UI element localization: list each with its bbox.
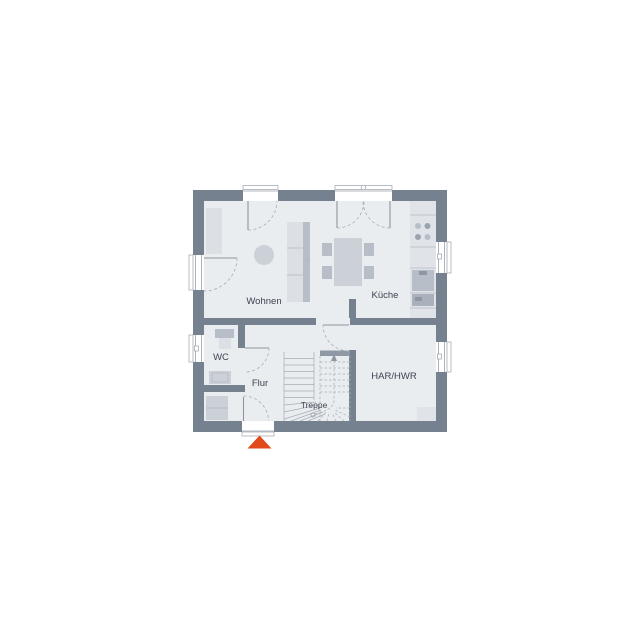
floor-plan-svg: Wohnen Küche WC Flur Treppe HAR/HWR — [0, 0, 636, 636]
kitchen-counter — [410, 201, 436, 318]
entrance-arrow-icon — [248, 436, 272, 449]
terrace-door-opening — [189, 255, 204, 290]
har-equipment — [417, 407, 436, 421]
room-label-treppe: Treppe — [301, 400, 328, 410]
room-label-wc: WC — [213, 352, 229, 363]
har-window — [436, 342, 451, 372]
sideboard — [206, 208, 222, 254]
entrance-opening — [242, 421, 274, 436]
room-label-flur: Flur — [252, 378, 268, 389]
floor-plan-page: Wohnen Küche WC Flur Treppe HAR/HWR — [0, 0, 636, 636]
room-label-kueche: Küche — [372, 290, 399, 301]
wc-window — [189, 335, 204, 362]
shelf-unit — [287, 222, 310, 302]
room-label-wohnen: Wohnen — [246, 296, 281, 307]
room-label-har-hwr: HAR/HWR — [371, 371, 417, 382]
wc-sink — [209, 371, 231, 384]
round-table — [254, 245, 274, 265]
hall-wardrobe — [206, 396, 228, 420]
kitchen-window — [436, 242, 451, 273]
french-door-opening — [335, 185, 392, 201]
top-door-opening — [243, 186, 278, 202]
